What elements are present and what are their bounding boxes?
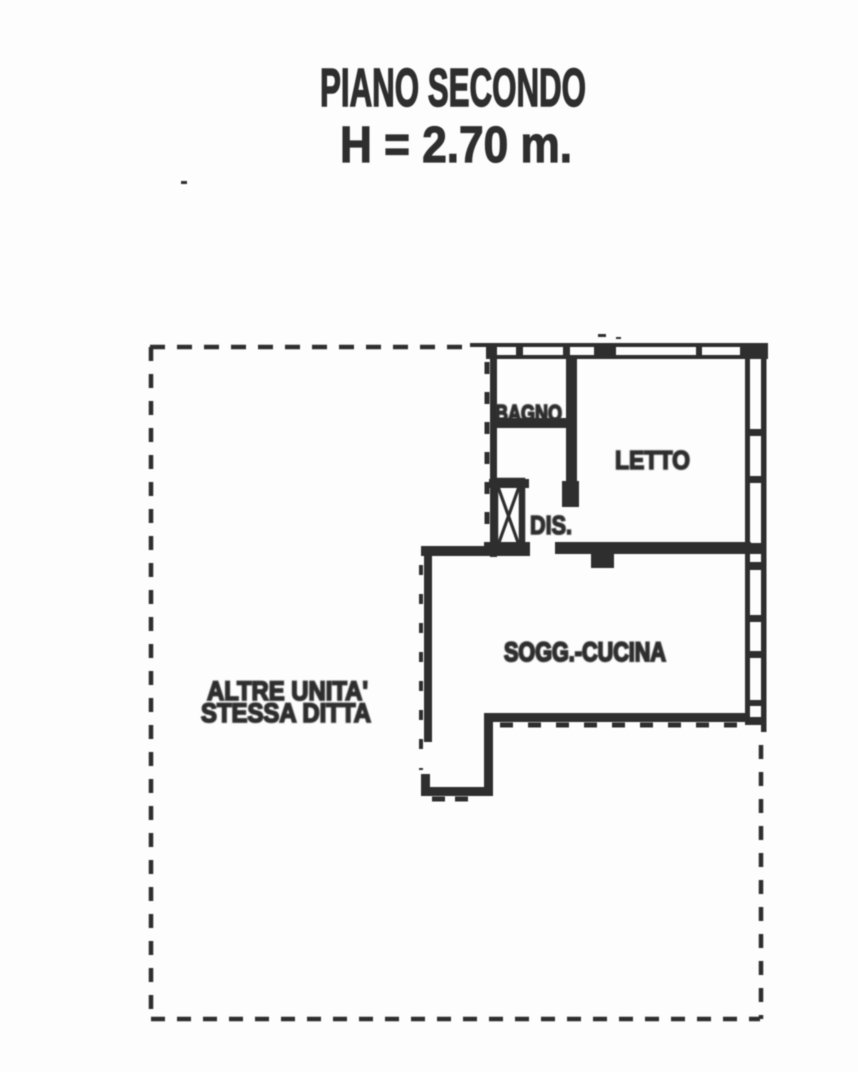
svg-text:H = 2.70 m.: H = 2.70 m. [340, 116, 572, 173]
svg-text:LETTO: LETTO [615, 445, 690, 475]
svg-text:PIANO SECONDO: PIANO SECONDO [320, 58, 586, 118]
svg-text:STESSA DITTA: STESSA DITTA [201, 698, 371, 728]
svg-text:SOGG.-CUCINA: SOGG.-CUCINA [504, 637, 666, 667]
svg-text:BAGNO: BAGNO [495, 400, 562, 426]
svg-text:DIS.: DIS. [530, 510, 572, 540]
